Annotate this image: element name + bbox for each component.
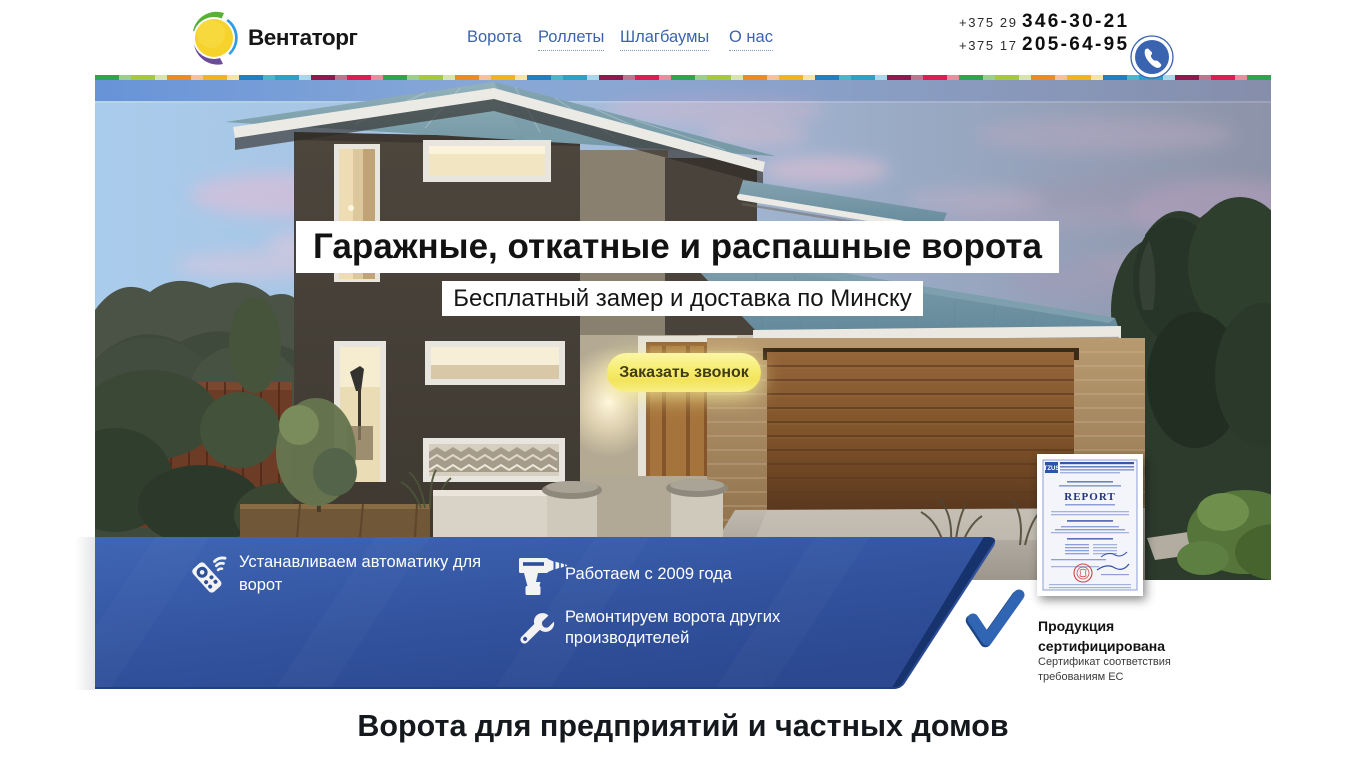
svg-text:TZUS: TZUS [1044,466,1060,472]
svg-text:REPORT: REPORT [1064,491,1115,503]
